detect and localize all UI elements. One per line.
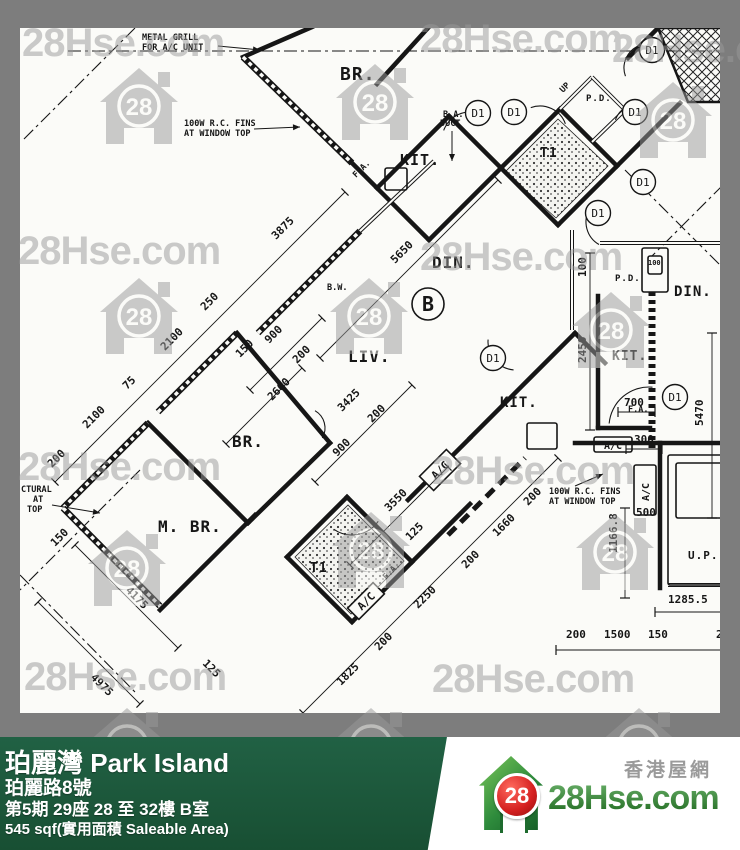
door-code-label: D1 bbox=[507, 106, 520, 119]
dim-label: 150 bbox=[48, 526, 71, 549]
dim-label: 1660 bbox=[490, 511, 518, 539]
dim-label: 75 bbox=[120, 374, 139, 393]
arrow-head bbox=[293, 124, 300, 130]
room-label: T1 bbox=[310, 561, 328, 576]
watermark-house-icon: 28 bbox=[572, 292, 650, 368]
watermark-text: 28Hse.com bbox=[24, 655, 226, 699]
watermark-28: 28 bbox=[358, 538, 385, 565]
watermark-text: 28Hse.com bbox=[612, 27, 740, 71]
annotation-text: TOP bbox=[27, 505, 42, 515]
dim-label: 150 bbox=[648, 628, 668, 641]
dim-label: 200 bbox=[365, 402, 388, 425]
annotation-text: UP bbox=[558, 81, 572, 95]
fixture-box bbox=[668, 455, 738, 585]
watermark-text: 28Hse.com bbox=[22, 21, 224, 65]
watermark-text: 28Hse.com bbox=[18, 445, 220, 489]
footer-bar: 珀麗灣 Park Island 珀麗路8號 第5期 29座 28 至 32樓 B… bbox=[0, 737, 740, 850]
watermark-28: 28 bbox=[602, 540, 629, 567]
annotation-text: F.A. bbox=[628, 405, 648, 415]
dim-label: 3875 bbox=[269, 214, 297, 242]
annotation-text: AT WINDOW TOP bbox=[184, 129, 251, 139]
dim-label: 2250 bbox=[411, 583, 439, 611]
watermark-28: 28 bbox=[114, 556, 141, 583]
watermark-28: 28 bbox=[598, 318, 625, 345]
watermark-house-icon: 28 bbox=[634, 82, 712, 158]
room-label: U.P. bbox=[688, 549, 719, 562]
door-code-label: D1 bbox=[668, 391, 681, 404]
arrow-head bbox=[449, 154, 455, 161]
watermark-28: 28 bbox=[126, 94, 153, 121]
dim-label: 5650 bbox=[388, 238, 416, 266]
room-label: T1 bbox=[540, 146, 558, 161]
watermark-house-icon: 28 bbox=[100, 278, 178, 354]
door-code-label: D1 bbox=[471, 107, 484, 120]
dim-label: 5470 bbox=[693, 400, 706, 427]
dim-label: 100 bbox=[648, 259, 661, 267]
dim-label: 200 bbox=[459, 548, 482, 571]
fixture-box bbox=[642, 248, 668, 292]
watermark-house-icon: 28 bbox=[600, 708, 678, 737]
fixture-box bbox=[527, 423, 557, 449]
watermark-house-icon: 28 bbox=[100, 68, 178, 144]
watermark-28: 28 bbox=[660, 108, 687, 135]
floor-plan-drawing: A/CA/CA/CA/C3875250210075210090020015026… bbox=[0, 0, 740, 737]
watermark-house-icon: 28 bbox=[332, 708, 410, 737]
room-label: M. BR. bbox=[158, 517, 222, 536]
dim-label: 900 bbox=[330, 436, 353, 459]
ac-label: A/C bbox=[641, 483, 652, 501]
watermark-house-icon: 28 bbox=[576, 514, 654, 590]
site-name: 28Hse.com bbox=[548, 779, 719, 818]
dim-label: 2 bbox=[716, 628, 723, 641]
annotation-text: DUCT bbox=[440, 119, 460, 129]
estate-area: 545 sqf(實用面積 Saleable Area) bbox=[5, 818, 229, 839]
room-label: KIT. bbox=[400, 151, 440, 169]
dim-label: 3425 bbox=[335, 386, 363, 414]
annotation-text: AT WINDOW TOP bbox=[549, 497, 616, 507]
floorplan-page: A/CA/CA/CA/C3875250210075210090020015026… bbox=[0, 0, 740, 850]
estate-block-unit: 第5期 29座 28 至 32樓 B室 bbox=[5, 795, 209, 820]
site-tagline: 香港屋網 bbox=[624, 755, 712, 782]
watermark-text: 28Hse.com bbox=[432, 657, 634, 701]
watermark-28: 28 bbox=[356, 304, 383, 331]
room-label: P.D. bbox=[586, 94, 612, 104]
watermark-28: 28 bbox=[362, 90, 389, 117]
room-label: BR. bbox=[232, 432, 264, 451]
ac-unit-box: A/C bbox=[641, 483, 652, 501]
dim-label: 125 bbox=[403, 520, 426, 543]
dim-label: 150 bbox=[233, 337, 256, 360]
door-code-label: D1 bbox=[636, 176, 649, 189]
dim-label: 1285.5 bbox=[668, 593, 708, 606]
dim-label: 200 bbox=[372, 630, 395, 653]
watermark-text: 28Hse.com bbox=[432, 449, 634, 493]
dim-label: 2600 bbox=[265, 375, 293, 403]
dim-label: 250 bbox=[198, 290, 221, 313]
watermark-28: 28 bbox=[126, 304, 153, 331]
room-label: KIT. bbox=[500, 395, 538, 411]
dim-label: 1825 bbox=[334, 660, 362, 688]
annotation-text: B.W. bbox=[327, 283, 347, 293]
dim-label: 200 bbox=[566, 628, 586, 641]
dim-label: 1500 bbox=[604, 628, 631, 641]
fixture-box bbox=[676, 463, 730, 518]
logo-28-badge: 28 bbox=[494, 773, 540, 819]
dim-label: 500 bbox=[636, 506, 656, 519]
annotation-text: 100W R.C. FINS bbox=[184, 119, 256, 129]
unit-label: B bbox=[422, 292, 434, 316]
watermark-house-icon: 28 bbox=[88, 708, 166, 737]
annotation-text: AT bbox=[33, 495, 43, 505]
annotation-text: F.A. bbox=[351, 159, 373, 181]
dim-label: 2100 bbox=[80, 403, 108, 431]
room-label: DIN. bbox=[674, 284, 712, 300]
dim-label: 300 bbox=[634, 433, 654, 446]
watermark-text: 28Hse.com bbox=[420, 17, 622, 61]
door-code-label: D1 bbox=[591, 207, 604, 220]
door-code-label: D1 bbox=[486, 352, 499, 365]
watermark-text: 28Hse.com bbox=[18, 229, 220, 273]
watermark-text: 28Hse.com bbox=[420, 235, 622, 279]
